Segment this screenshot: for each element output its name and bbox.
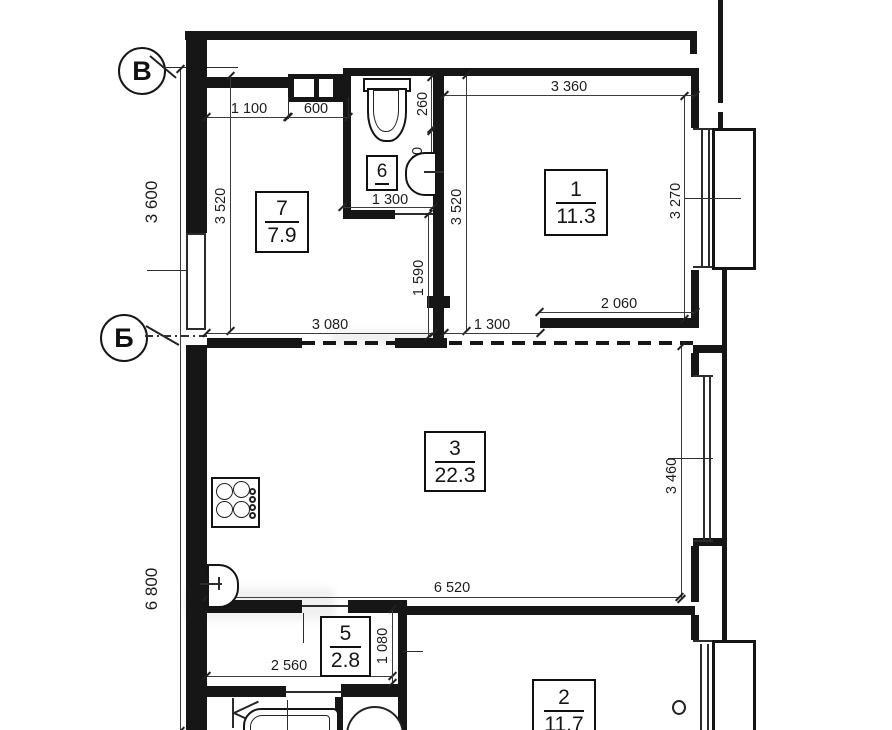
window (701, 130, 703, 268)
dimension-line (431, 78, 432, 130)
divider (544, 710, 585, 712)
room-number: 5 (340, 623, 352, 644)
wall (343, 68, 351, 215)
dimension-label-1590: 1 590 (411, 260, 427, 296)
room-6-label: 6 (366, 155, 398, 191)
door-leaf (303, 613, 304, 643)
wall (186, 31, 207, 233)
dimension-label-3360: 3 360 (551, 79, 587, 95)
window (204, 233, 206, 330)
axis-bubble-b: Б (100, 314, 148, 362)
wall (691, 353, 699, 377)
window-center-tick (684, 198, 741, 199)
wall (690, 40, 697, 54)
dimension-label-1300-door: 1 300 (474, 317, 510, 333)
axis-bubble-v: В (118, 47, 166, 95)
wall (351, 68, 433, 76)
room-area: 7.9 (267, 225, 296, 246)
wall (693, 345, 723, 353)
dimension-label-3460: 3 460 (664, 458, 680, 494)
wall (186, 345, 207, 730)
room-area: 11.3 (556, 206, 595, 227)
dimension-line (180, 70, 181, 730)
room-number: 2 (558, 687, 570, 708)
wall (427, 296, 450, 308)
dimension-label-3270: 3 270 (668, 183, 684, 219)
floor-plan: В Б 3 600 6 800 (0, 0, 892, 730)
window (703, 377, 705, 542)
dimension-label-6800: 6 800 (142, 568, 162, 611)
duct-opening (319, 79, 333, 97)
divider (435, 461, 474, 463)
washing-machine-icon (346, 706, 404, 730)
window (693, 128, 712, 130)
room-1-label: 1 11.3 (544, 169, 608, 236)
door-leaf (287, 700, 288, 730)
wall (691, 615, 699, 640)
dimension-line (540, 312, 695, 313)
room-7-label: 7 7.9 (255, 191, 309, 253)
room-5-label: 5 2.8 (320, 616, 371, 677)
room-area: 11.7 (544, 714, 583, 730)
divider (556, 202, 597, 204)
door-handle-icon (672, 700, 686, 715)
dimension-label-6520: 6 520 (434, 580, 470, 596)
dimension-line (392, 610, 393, 682)
room-number: 3 (449, 438, 461, 459)
wall (540, 318, 697, 328)
room-2-label: 2 11.7 (532, 679, 596, 730)
window (693, 375, 713, 377)
wall (185, 31, 697, 40)
balcony (712, 128, 756, 270)
window (700, 644, 702, 730)
window (709, 377, 711, 542)
divider (265, 221, 299, 223)
axis-label-b: Б (114, 323, 133, 354)
window (693, 540, 713, 542)
window (186, 233, 206, 235)
wall (691, 270, 699, 328)
axis-line (145, 335, 209, 337)
room-number: 1 (570, 179, 582, 200)
dimension-line (207, 597, 679, 598)
dimension-label-3080: 3 080 (312, 317, 348, 333)
wall (395, 338, 447, 348)
wall (691, 546, 699, 602)
window (693, 266, 712, 268)
window (693, 640, 712, 642)
window (186, 328, 206, 330)
room-number: 7 (276, 198, 288, 219)
wall (186, 600, 302, 613)
balcony (712, 640, 756, 730)
wall (207, 338, 302, 348)
wall (406, 606, 695, 615)
dimension-label-3520-room1: 3 520 (449, 189, 465, 225)
dimension-line (684, 97, 685, 318)
extension-line (403, 651, 423, 652)
dimension-label-1080: 1 080 (375, 628, 391, 664)
extension-line (288, 97, 289, 119)
room-number: 6 (375, 161, 390, 185)
dimension-label-260: 260 (415, 92, 431, 116)
dimension-line (230, 77, 231, 330)
building-edge (718, 0, 723, 103)
door-opening (286, 691, 341, 693)
axis-label-v: В (132, 56, 152, 87)
dimension-line (445, 95, 695, 96)
dimension-line (681, 347, 682, 598)
window (707, 644, 709, 730)
window (186, 233, 188, 330)
dimension-line (207, 117, 288, 118)
window-center-tick (147, 270, 186, 271)
dimension-line (428, 215, 429, 336)
dimension-line (288, 117, 348, 118)
wall (398, 600, 407, 730)
window (708, 130, 710, 268)
dimension-line (466, 76, 467, 330)
dimension-label-2560: 2 560 (271, 658, 307, 674)
wall (444, 68, 697, 76)
dimension-line (445, 333, 540, 334)
room-area: 22.3 (435, 465, 476, 486)
dimension-label-600: 600 (304, 101, 328, 117)
duct-opening (294, 79, 314, 97)
building-edge (722, 270, 727, 640)
extension-line (348, 97, 349, 119)
dimension-label-1100: 1 100 (231, 101, 267, 117)
wall (207, 77, 292, 88)
dimension-label-2060: 2 060 (601, 296, 637, 312)
dimension-label-3600: 3 600 (142, 181, 162, 224)
room-area: 2.8 (331, 650, 360, 671)
building-edge (718, 112, 723, 128)
divider (330, 646, 362, 648)
dimension-line (207, 333, 433, 334)
room-3-label: 3 22.3 (424, 431, 486, 492)
dimension-label-1300-bath: 1 300 (372, 192, 408, 208)
open-boundary-dashed (302, 341, 693, 345)
wall (343, 210, 395, 219)
wall (207, 686, 286, 697)
dimension-label-3520-room7: 3 520 (213, 188, 229, 224)
door-opening (302, 605, 348, 607)
